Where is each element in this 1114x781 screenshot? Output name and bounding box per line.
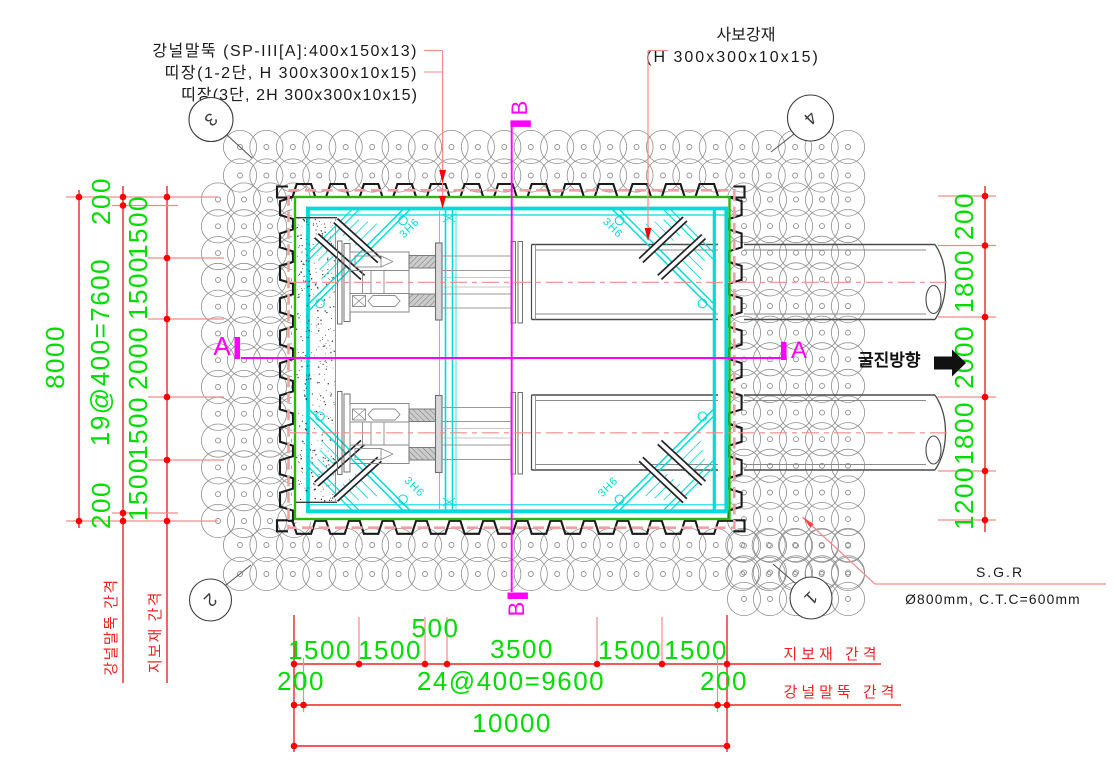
svg-text:사보강재: 사보강재 (717, 26, 776, 44)
svg-text:200: 200 (86, 177, 116, 225)
svg-text:1800: 1800 (949, 401, 979, 465)
svg-text:1500: 1500 (358, 635, 422, 665)
svg-text:1800: 1800 (949, 249, 979, 313)
svg-text:B: B (507, 101, 532, 116)
svg-text:200: 200 (86, 481, 116, 529)
svg-text:A: A (213, 331, 231, 361)
svg-text:2000: 2000 (123, 326, 153, 390)
svg-text:굴진방향: 굴진방향 (858, 350, 921, 370)
svg-text:지보재 간격: 지보재 간격 (783, 646, 880, 663)
svg-text:S.G.R: S.G.R (976, 564, 1024, 580)
svg-text:8000: 8000 (40, 325, 70, 389)
svg-text:3500: 3500 (490, 634, 554, 664)
svg-text:1500: 1500 (123, 195, 153, 259)
svg-text:Ø800mm, C.T.C=600mm: Ø800mm, C.T.C=600mm (905, 592, 1081, 607)
svg-text:1500: 1500 (123, 396, 153, 460)
svg-text:200: 200 (949, 192, 979, 240)
svg-text:띠장(1-2단, H 300x300x10x15): 띠장(1-2단, H 300x300x10x15) (165, 64, 418, 82)
svg-text:강널말뚝 (SP-III[A]:400x150x13): 강널말뚝 (SP-III[A]:400x150x13) (152, 42, 418, 60)
svg-text:1500: 1500 (664, 635, 728, 665)
svg-text:10000: 10000 (472, 708, 552, 738)
svg-text:200: 200 (277, 666, 325, 696)
svg-text:지보재 간격: 지보재 간격 (147, 591, 164, 673)
svg-text:1200: 1200 (949, 466, 979, 530)
svg-text:1500: 1500 (123, 256, 153, 320)
svg-text:B: B (504, 602, 529, 617)
svg-text:강널말뚝 간격: 강널말뚝 간격 (784, 684, 899, 701)
svg-text:1500: 1500 (288, 635, 352, 665)
svg-text:19@400=7600: 19@400=7600 (85, 258, 115, 446)
svg-text:1500: 1500 (123, 457, 153, 521)
svg-text:A: A (791, 337, 807, 364)
svg-text:200: 200 (700, 666, 748, 696)
svg-text:강널말뚝 간격: 강널말뚝 간격 (103, 578, 120, 675)
svg-text:(H 300x300x10x15): (H 300x300x10x15) (646, 49, 820, 66)
svg-text:24@400=9600: 24@400=9600 (417, 666, 605, 696)
svg-text:1500: 1500 (598, 635, 662, 665)
